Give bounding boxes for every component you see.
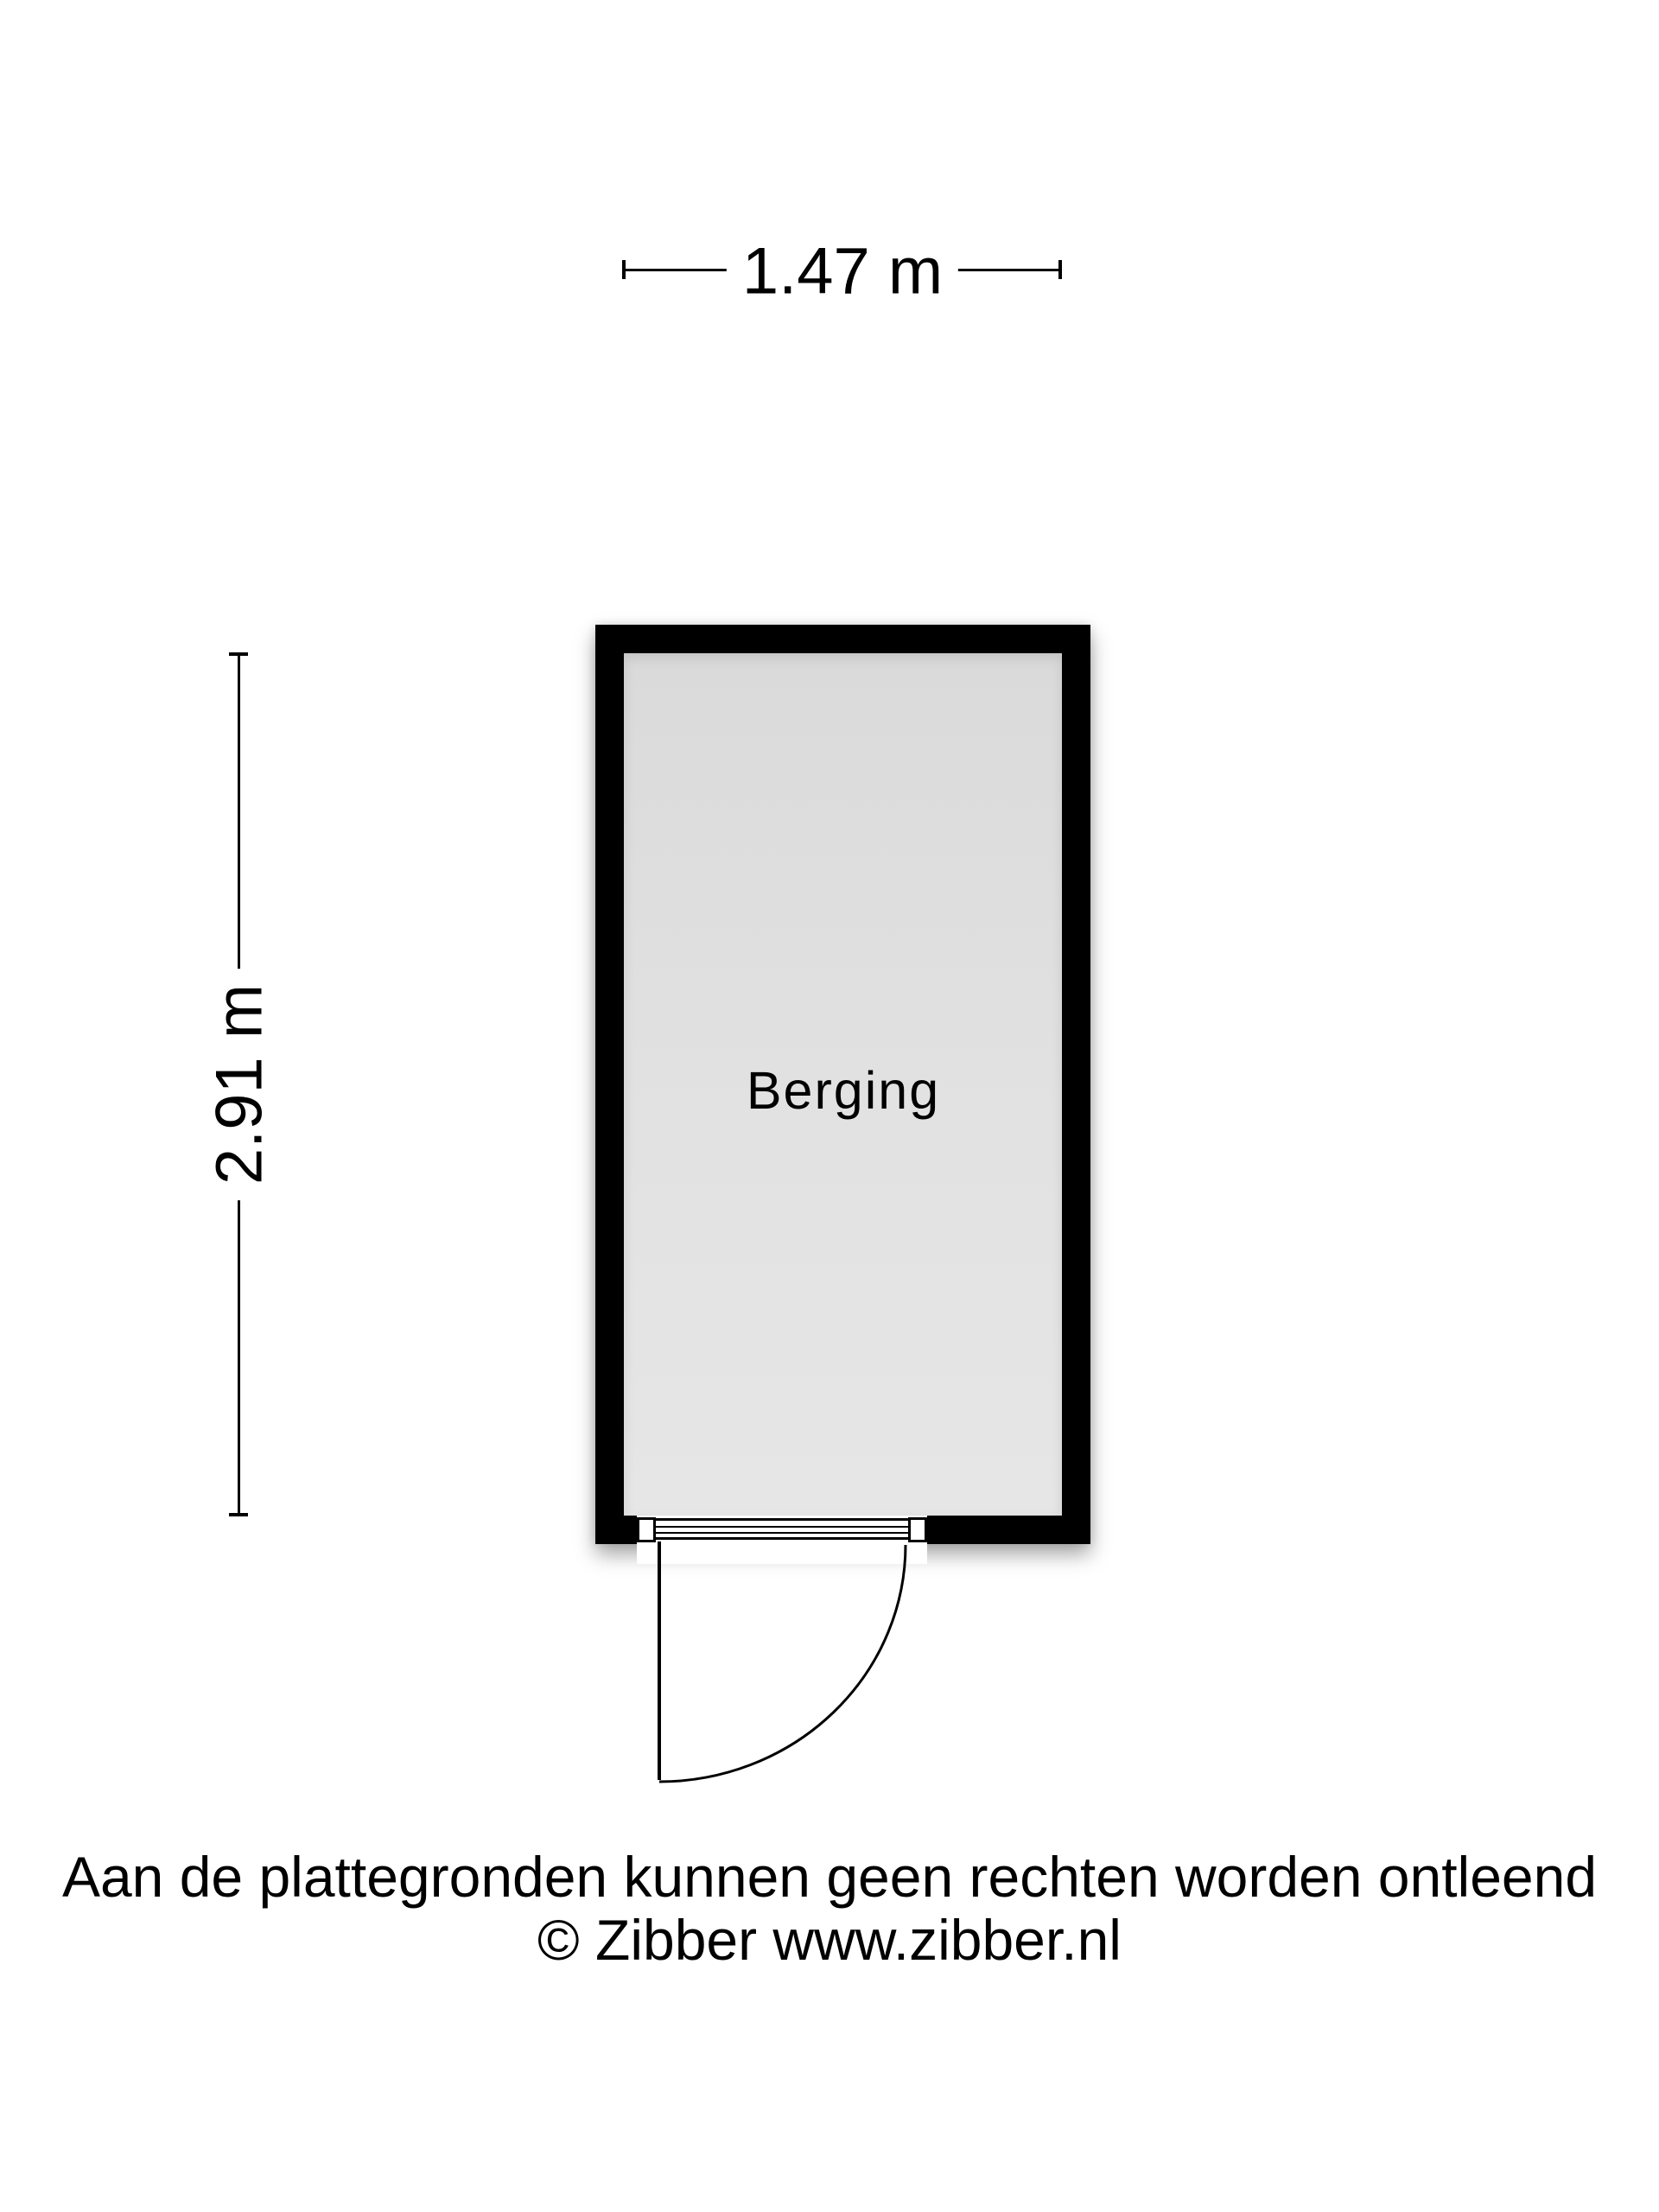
floor-plan-page: 1.47 m 2.91 m Berging Aan de plattegrond…	[0, 0, 1659, 2212]
width-dimension-label: 1.47 m	[727, 234, 958, 309]
width-dimension-tick-right	[1058, 260, 1062, 279]
height-dimension-tick-top	[229, 652, 248, 656]
door-jamb-right	[908, 1517, 927, 1542]
copyright-text: © Zibber www.zibber.nl	[0, 1909, 1659, 1971]
width-dimension-tick-left	[622, 260, 626, 279]
door-swing-arc	[659, 1545, 906, 1782]
height-dimension-tick-bottom	[229, 1513, 248, 1516]
door-threshold-line	[656, 1532, 908, 1534]
door-threshold	[656, 1518, 908, 1540]
room-label: Berging	[625, 1061, 1062, 1120]
height-dimension-label: 2.91 m	[202, 969, 277, 1200]
door-jamb-left	[637, 1517, 656, 1542]
door-threshold-line	[656, 1526, 908, 1528]
disclaimer-text: Aan de plattegronden kunnen geen rechten…	[0, 1846, 1659, 1908]
